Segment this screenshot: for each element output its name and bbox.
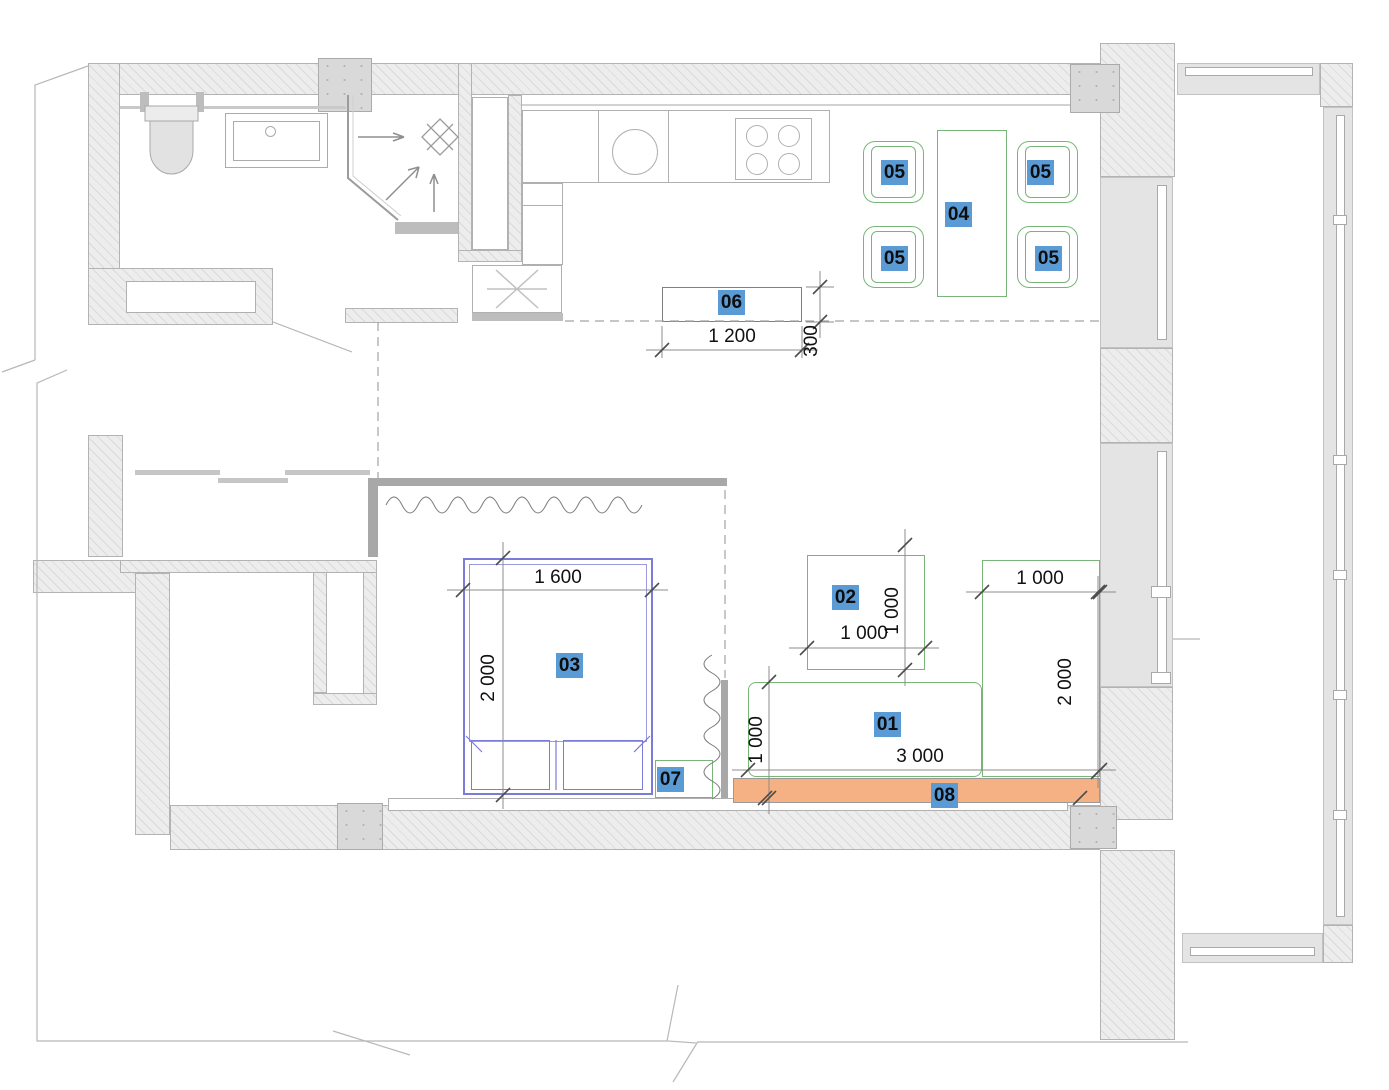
dim-bed-length: 2 000 (478, 633, 500, 723)
shower-glass (348, 95, 401, 220)
dimension-ticks (456, 280, 1107, 805)
zone-dashed-line (378, 321, 1100, 678)
bed-details (466, 736, 650, 790)
dimension-lines (447, 271, 1116, 814)
shower-head-icon (422, 119, 458, 155)
shower-arrows-icon (358, 133, 438, 212)
item-tag-01[interactable]: 01 (874, 712, 901, 737)
item-tag-05[interactable]: 05 (881, 160, 908, 185)
plan-linework (0, 0, 1389, 1090)
item-tag-05[interactable]: 05 (1035, 246, 1062, 271)
dim-island-width: 1 200 (687, 326, 777, 348)
item-tag-06[interactable]: 06 (718, 290, 745, 315)
curtain-line (386, 497, 720, 799)
item-tag-04[interactable]: 04 (945, 202, 972, 227)
dim-cabinet-height: 2 000 (1055, 637, 1077, 727)
dim-sofa-depth: 1 000 (746, 695, 768, 785)
dim-sofa-width: 3 000 (875, 746, 965, 768)
fridge-asterisk-icon (487, 270, 547, 308)
dim-island-depth: 300 (801, 296, 823, 386)
item-tag-07[interactable]: 07 (657, 767, 684, 792)
item-tag-08[interactable]: 08 (931, 783, 958, 808)
item-tag-03[interactable]: 03 (556, 653, 583, 678)
toilet-icon (145, 106, 198, 174)
item-tag-05[interactable]: 05 (1027, 160, 1054, 185)
door-swing-line (273, 322, 352, 352)
dim-bed-width: 1 600 (513, 567, 603, 589)
dim-cabinet-width: 1 000 (995, 568, 1085, 590)
floor-plan: 1 200 300 1 600 2 000 1 000 1 000 1 000 … (0, 0, 1389, 1090)
dim-table02-depth: 1 000 (882, 566, 904, 656)
item-tag-02[interactable]: 02 (832, 585, 859, 610)
item-tag-05[interactable]: 05 (881, 246, 908, 271)
